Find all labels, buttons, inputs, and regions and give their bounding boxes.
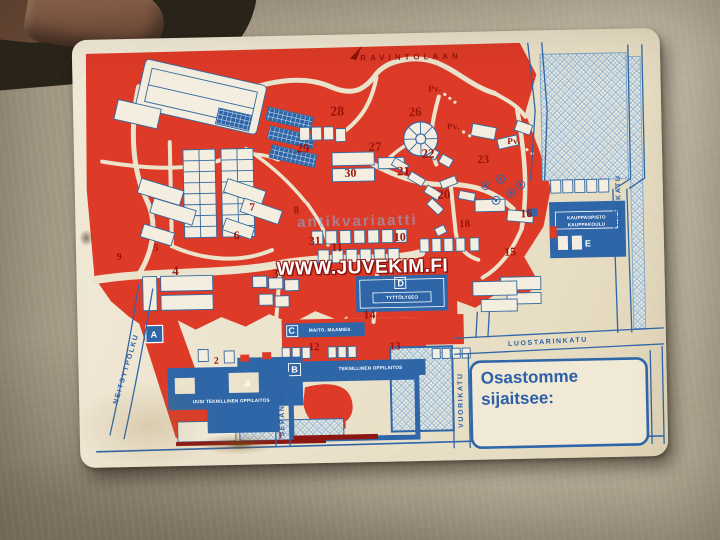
street-label: NEITSYTPOLKU <box>113 333 141 405</box>
pv-marker: Pv. <box>447 121 460 131</box>
legend-text: Osastomme sijaitsee: <box>481 364 636 410</box>
watermark-small: antikvariaatti <box>297 211 418 231</box>
map-number: 12 <box>308 341 319 353</box>
route-label-ravintolaan: RAVINTOLAAN <box>360 52 462 63</box>
map-number: 13 <box>389 340 400 352</box>
map-labels-layer: RAVINTOLAAN antikvariaatti WWW.JUVEKIM.F… <box>72 28 669 468</box>
legend-line-2: sijaitsee: <box>481 386 635 410</box>
map-number: 29 <box>296 140 309 156</box>
street-label: LUOSTARINKATU <box>508 337 588 348</box>
map-number: 7 <box>249 201 255 213</box>
map-number: 27 <box>368 139 381 155</box>
map-number: 31 <box>309 234 321 249</box>
map-number: 2 <box>214 356 219 367</box>
map-number: 26 <box>408 104 421 120</box>
building-letter: B <box>291 365 298 375</box>
map-number: 14 <box>363 307 375 322</box>
building-label: KAUPPAKOULU <box>568 222 606 228</box>
pv-marker: Pv. <box>507 136 520 146</box>
map-number: 30 <box>344 166 356 181</box>
map-number: 6 <box>234 228 240 243</box>
map-number: 5 <box>153 243 158 254</box>
map-number: 21 <box>397 163 410 179</box>
map-number: 16 <box>520 206 532 221</box>
photo-background: RAVINTOLAAN antikvariaatti WWW.JUVEKIM.F… <box>0 0 720 540</box>
street-label: SEPÄNKATU <box>278 379 286 437</box>
map-number: 9 <box>117 252 122 263</box>
map-number: 20 <box>437 186 450 202</box>
building-letter: C <box>288 326 295 336</box>
building-label: KAUPPAOPISTO <box>567 215 606 221</box>
building-label: MAITO. MAAMIES <box>309 327 351 333</box>
building-letter: A <box>150 329 157 339</box>
map-number: 28 <box>330 105 344 121</box>
map-number: 4 <box>172 263 179 279</box>
map-number: 11 <box>331 240 343 255</box>
street-label: VUORIKATU <box>457 372 465 428</box>
pv-marker: Pv. <box>428 83 441 93</box>
map-card: RAVINTOLAAN antikvariaatti WWW.JUVEKIM.F… <box>72 28 669 468</box>
building-label: TYTTÖLYSEO <box>386 295 418 301</box>
map-number: 23 <box>477 152 489 167</box>
map-number: 18 <box>459 218 470 230</box>
building-letter: D <box>397 278 404 288</box>
building-label: TEKNILLINEN OPPILAITOS <box>339 365 403 371</box>
map-number: 8 <box>293 204 299 216</box>
street-label: KASKENKATU <box>615 174 623 239</box>
building-letter: E <box>585 238 591 248</box>
map-number: 10 <box>394 230 406 245</box>
map-number: 22 <box>421 146 434 162</box>
building-letter: A <box>244 379 251 389</box>
map-number: 15 <box>504 244 516 259</box>
building-label: UUSI TEKNILLINEN OPPILAITOS <box>193 398 270 405</box>
map-number: 3 <box>272 266 278 281</box>
watermark-large: WWW.JUVEKIM.FI <box>276 255 448 281</box>
